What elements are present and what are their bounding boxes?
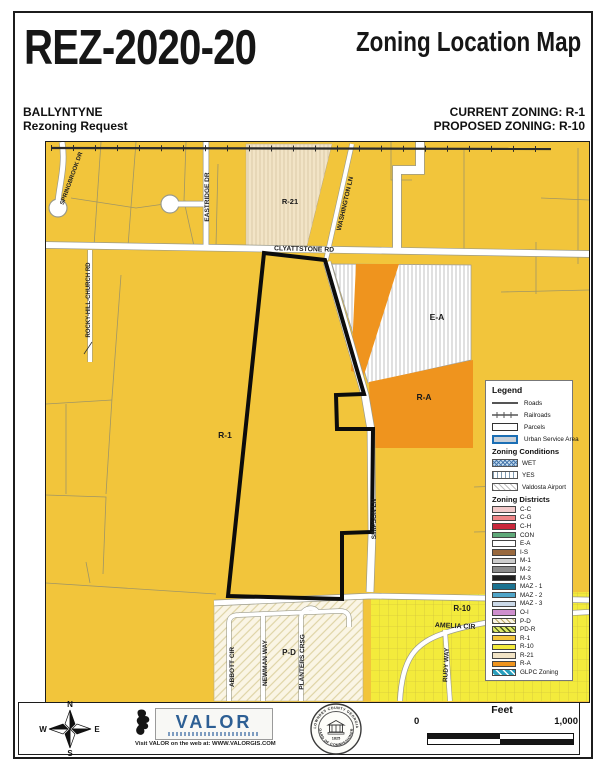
cg-swatch (492, 515, 516, 522)
road-label-abbott: ABBOTT CIR (229, 647, 236, 687)
legend-district-glpc: GLPC Zoning (492, 668, 572, 677)
legend-districts-title: Zoning Districts (492, 495, 572, 504)
legend-item-yes: YES (492, 469, 572, 481)
legend-district-cc: C-C (492, 505, 572, 514)
maz3-swatch (492, 601, 516, 608)
case-number: REZ-2020-20 (24, 20, 256, 76)
compass-w: W (39, 725, 47, 734)
legend-item-wet: WET (492, 457, 572, 469)
glpc-swatch (492, 669, 516, 676)
zone-label-ra: R-A (416, 392, 431, 402)
valor-inner-box: VALOR (155, 708, 273, 740)
zoning-map-page: REZ-2020-20 Zoning Location Map BALLYNTY… (0, 0, 600, 777)
legend-item-parcels: Parcels (492, 421, 572, 433)
valor-mark-icon (135, 709, 153, 737)
ch-swatch (492, 523, 516, 530)
cul-de-sac-eastridge (161, 195, 179, 213)
compass-n: N (67, 700, 73, 709)
valor-logo: VALOR Visit VALOR on the web at: WWW.VAL… (135, 706, 285, 752)
urban-service-area-symbol (492, 435, 520, 444)
zone-label-r10: R-10 (453, 604, 471, 613)
legend-district-oi: O-I (492, 608, 572, 617)
road-label-eastridge: EASTRIDGE DR (204, 172, 211, 221)
applicant-name: BALLYNTYNE (23, 105, 103, 119)
railroad-line (51, 148, 551, 149)
compass-s: S (67, 749, 73, 757)
scale-unit-label: Feet (452, 704, 552, 716)
maz2-swatch (492, 592, 516, 599)
scale-end-label: 1,000 (534, 716, 578, 727)
airport-swatch (492, 483, 518, 491)
legend-district-ch: C-H (492, 522, 572, 531)
legend-district-m3: M-3 (492, 574, 572, 583)
legend-item-roads: Roads (492, 397, 572, 409)
m1-swatch (492, 558, 516, 565)
seal-year: 1825 (332, 737, 340, 741)
m3-swatch (492, 575, 516, 582)
road-label-simpson: SIMPSON LN (371, 498, 378, 539)
legend-item-urban-service-area: Urban Service Area (492, 433, 572, 445)
zone-label-r1: R-1 (218, 430, 232, 440)
scale-bar-segment (428, 739, 500, 744)
legend-district-pdr: PD-R (492, 625, 572, 634)
parcels-symbol (492, 423, 520, 431)
con-swatch (492, 532, 516, 539)
compass-rose-icon: N E S W (38, 699, 102, 757)
yes-swatch (492, 471, 518, 479)
r21-swatch (492, 652, 516, 659)
road-label-newman: NEWMAN WAY (262, 639, 269, 686)
pd-swatch (492, 618, 516, 625)
legend-item-railroads: Railroads (492, 409, 572, 421)
legend-district-r10: R-10 (492, 643, 572, 652)
zone-label-pd: P-D (282, 648, 296, 657)
legend-title: Legend (492, 385, 572, 395)
legend-district-con: CON (492, 531, 572, 540)
is-swatch (492, 549, 516, 556)
scale-bar (427, 733, 574, 745)
legend: Legend Roads Railroads Parcels Urban Ser… (485, 380, 573, 681)
legend-district-maz3: MAZ - 3 (492, 600, 572, 609)
current-zoning: CURRENT ZONING: R-1 (434, 105, 585, 119)
valor-web-address: Visit VALOR on the web at: WWW.VALORGIS.… (135, 741, 285, 747)
county-seal: LOWNDES COUNTY GEORGIA BOARD OF COMMISSI… (308, 701, 364, 756)
wet-swatch (492, 459, 518, 467)
legend-district-m1: M-1 (492, 557, 572, 566)
pdr-swatch (492, 626, 516, 633)
request-type: Rezoning Request (23, 119, 128, 133)
compass-e: E (94, 725, 100, 734)
legend-district-m2: M-2 (492, 565, 572, 574)
proposed-zoning: PROPOSED ZONING: R-10 (434, 119, 585, 133)
m2-swatch (492, 566, 516, 573)
road-label-rockyhill: ROCKY-HILL-CHURCH RD (86, 262, 92, 338)
r10-swatch (492, 644, 516, 651)
zone-label-ea: E-A (430, 312, 445, 322)
maz1-swatch (492, 583, 516, 590)
legend-district-r21: R-21 (492, 651, 572, 660)
roads-symbol (492, 402, 520, 404)
ea-swatch (492, 540, 516, 547)
legend-district-maz2: MAZ - 2 (492, 591, 572, 600)
legend-district-ra: R-A (492, 660, 572, 669)
legend-conditions-title: Zoning Conditions (492, 447, 572, 456)
valor-tagline-microtext (168, 732, 260, 736)
scale-bar-segment (500, 739, 573, 744)
r1-swatch (492, 635, 516, 642)
legend-district-maz1: MAZ - 1 (492, 582, 572, 591)
legend-district-r1: R-1 (492, 634, 572, 643)
legend-district-cg: C-G (492, 514, 572, 523)
legend-district-pd: P-D (492, 617, 572, 626)
ra-swatch (492, 661, 516, 668)
page-title: Zoning Location Map (356, 26, 581, 58)
road-label-planters: PLANTERS CRSG (299, 634, 307, 690)
scale-start-label: 0 (414, 716, 434, 727)
legend-district-is: I-S (492, 548, 572, 557)
legend-district-ea: E-A (492, 539, 572, 548)
valor-name: VALOR (176, 713, 253, 731)
oi-swatch (492, 609, 516, 616)
zone-label-r21: R-21 (282, 197, 298, 206)
cc-swatch (492, 506, 516, 513)
legend-item-valdosta-airport: Valdosta Airport (492, 481, 572, 493)
railroad-symbol (492, 411, 520, 419)
zoning-summary: CURRENT ZONING: R-1 PROPOSED ZONING: R-1… (434, 105, 585, 133)
